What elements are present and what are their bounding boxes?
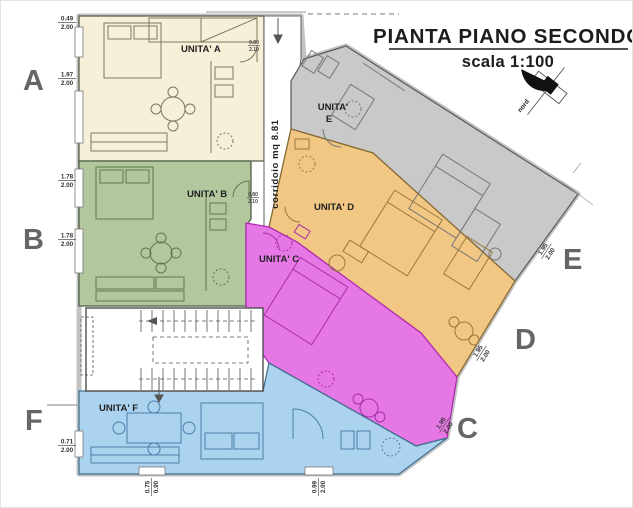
corridor-label: corridoio mq 8.81 <box>270 119 281 209</box>
title-block: PIANTA PIANO SECONDO scala 1:100 <box>373 25 633 71</box>
dimension-left-4: 1.78 2.00 <box>58 233 76 249</box>
dimension-left-3: 1.78 2.00 <box>58 174 76 190</box>
svg-text:0.90: 0.90 <box>153 480 160 493</box>
dimension-door-a: 0.80 2.10 <box>248 40 260 53</box>
dimension-left-2: 1.97 2.00 <box>58 72 76 88</box>
svg-text:2.00: 2.00 <box>61 80 74 87</box>
svg-text:0.71: 0.71 <box>61 439 74 446</box>
svg-text:2.10: 2.10 <box>248 199 258 205</box>
letter-e: E <box>563 244 582 276</box>
dimension-left-5: 0.71 2.00 <box>58 439 76 455</box>
svg-text:0.75: 0.75 <box>145 480 152 493</box>
svg-text:0.80: 0.80 <box>248 192 258 198</box>
drawing-title: PIANTA PIANO SECONDO <box>373 25 633 48</box>
svg-text:1.78: 1.78 <box>61 233 74 240</box>
floor-plan-page: PIANTA PIANO SECONDO scala 1:100 nord UN… <box>0 0 633 508</box>
svg-text:2.00: 2.00 <box>61 447 74 454</box>
svg-text:2.00: 2.00 <box>61 24 74 31</box>
unit-c-label: UNITA' C <box>259 254 299 265</box>
svg-text:0.80: 0.80 <box>249 40 259 46</box>
staircase <box>81 308 263 391</box>
letter-c: C <box>457 413 478 445</box>
letter-b: B <box>23 224 44 256</box>
unit-d-label: UNITA' D <box>314 202 354 213</box>
compass-label: nord <box>517 98 531 114</box>
letter-a: A <box>23 65 44 97</box>
floor-plan-drawing: PIANTA PIANO SECONDO scala 1:100 nord UN… <box>1 1 633 508</box>
svg-text:2.00: 2.00 <box>320 480 327 493</box>
svg-text:1.78: 1.78 <box>61 174 74 181</box>
unit-a-label: UNITA' A <box>181 44 221 55</box>
svg-text:0.49: 0.49 <box>61 16 74 23</box>
letter-f: F <box>25 405 43 437</box>
drawing-scale: scala 1:100 <box>462 53 554 71</box>
dimension-left-1: 0.49 2.00 <box>58 16 76 32</box>
svg-text:2.00: 2.00 <box>61 241 74 248</box>
unit-e-label-line1: UNITA' <box>318 102 349 113</box>
unit-b-label: UNITA' B <box>187 189 227 200</box>
unit-e-label-line2: E <box>326 114 332 125</box>
svg-text:2.00: 2.00 <box>61 182 74 189</box>
svg-text:0.99: 0.99 <box>312 480 319 493</box>
dimension-bottom-2: 0.99 2.00 <box>312 478 328 496</box>
unit-a-area <box>79 16 264 161</box>
svg-text:1.97: 1.97 <box>61 72 74 79</box>
letter-d: D <box>515 324 536 356</box>
dimension-bottom-1: 0.75 0.90 <box>145 478 161 496</box>
unit-f-label: UNITA' F <box>99 403 138 414</box>
dimension-door-b: 0.80 2.10 <box>247 192 259 205</box>
svg-text:2.10: 2.10 <box>249 47 259 53</box>
